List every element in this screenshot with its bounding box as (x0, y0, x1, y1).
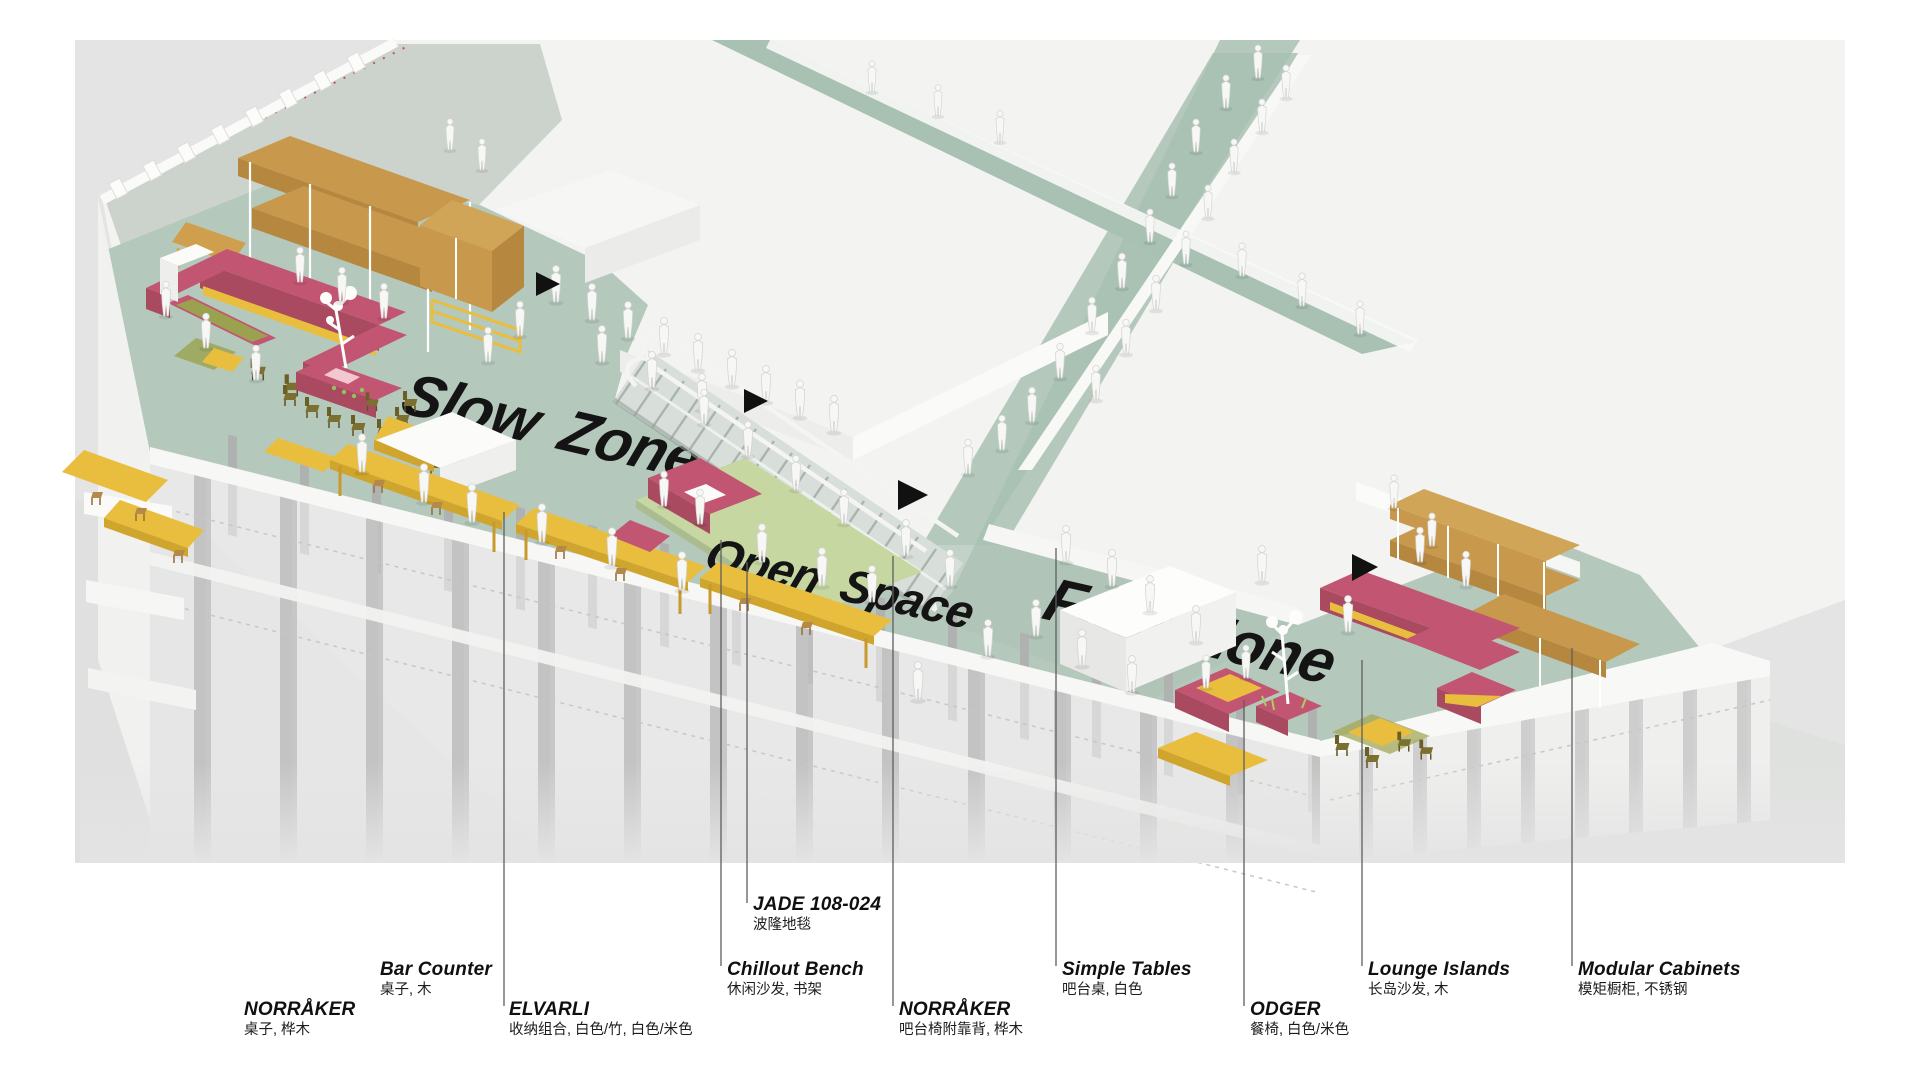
axonometric-scene: Slow Zone Open Space Fast Zone (0, 0, 1920, 1080)
diagram-page: Slow Zone Open Space Fast Zone (0, 0, 1920, 1080)
